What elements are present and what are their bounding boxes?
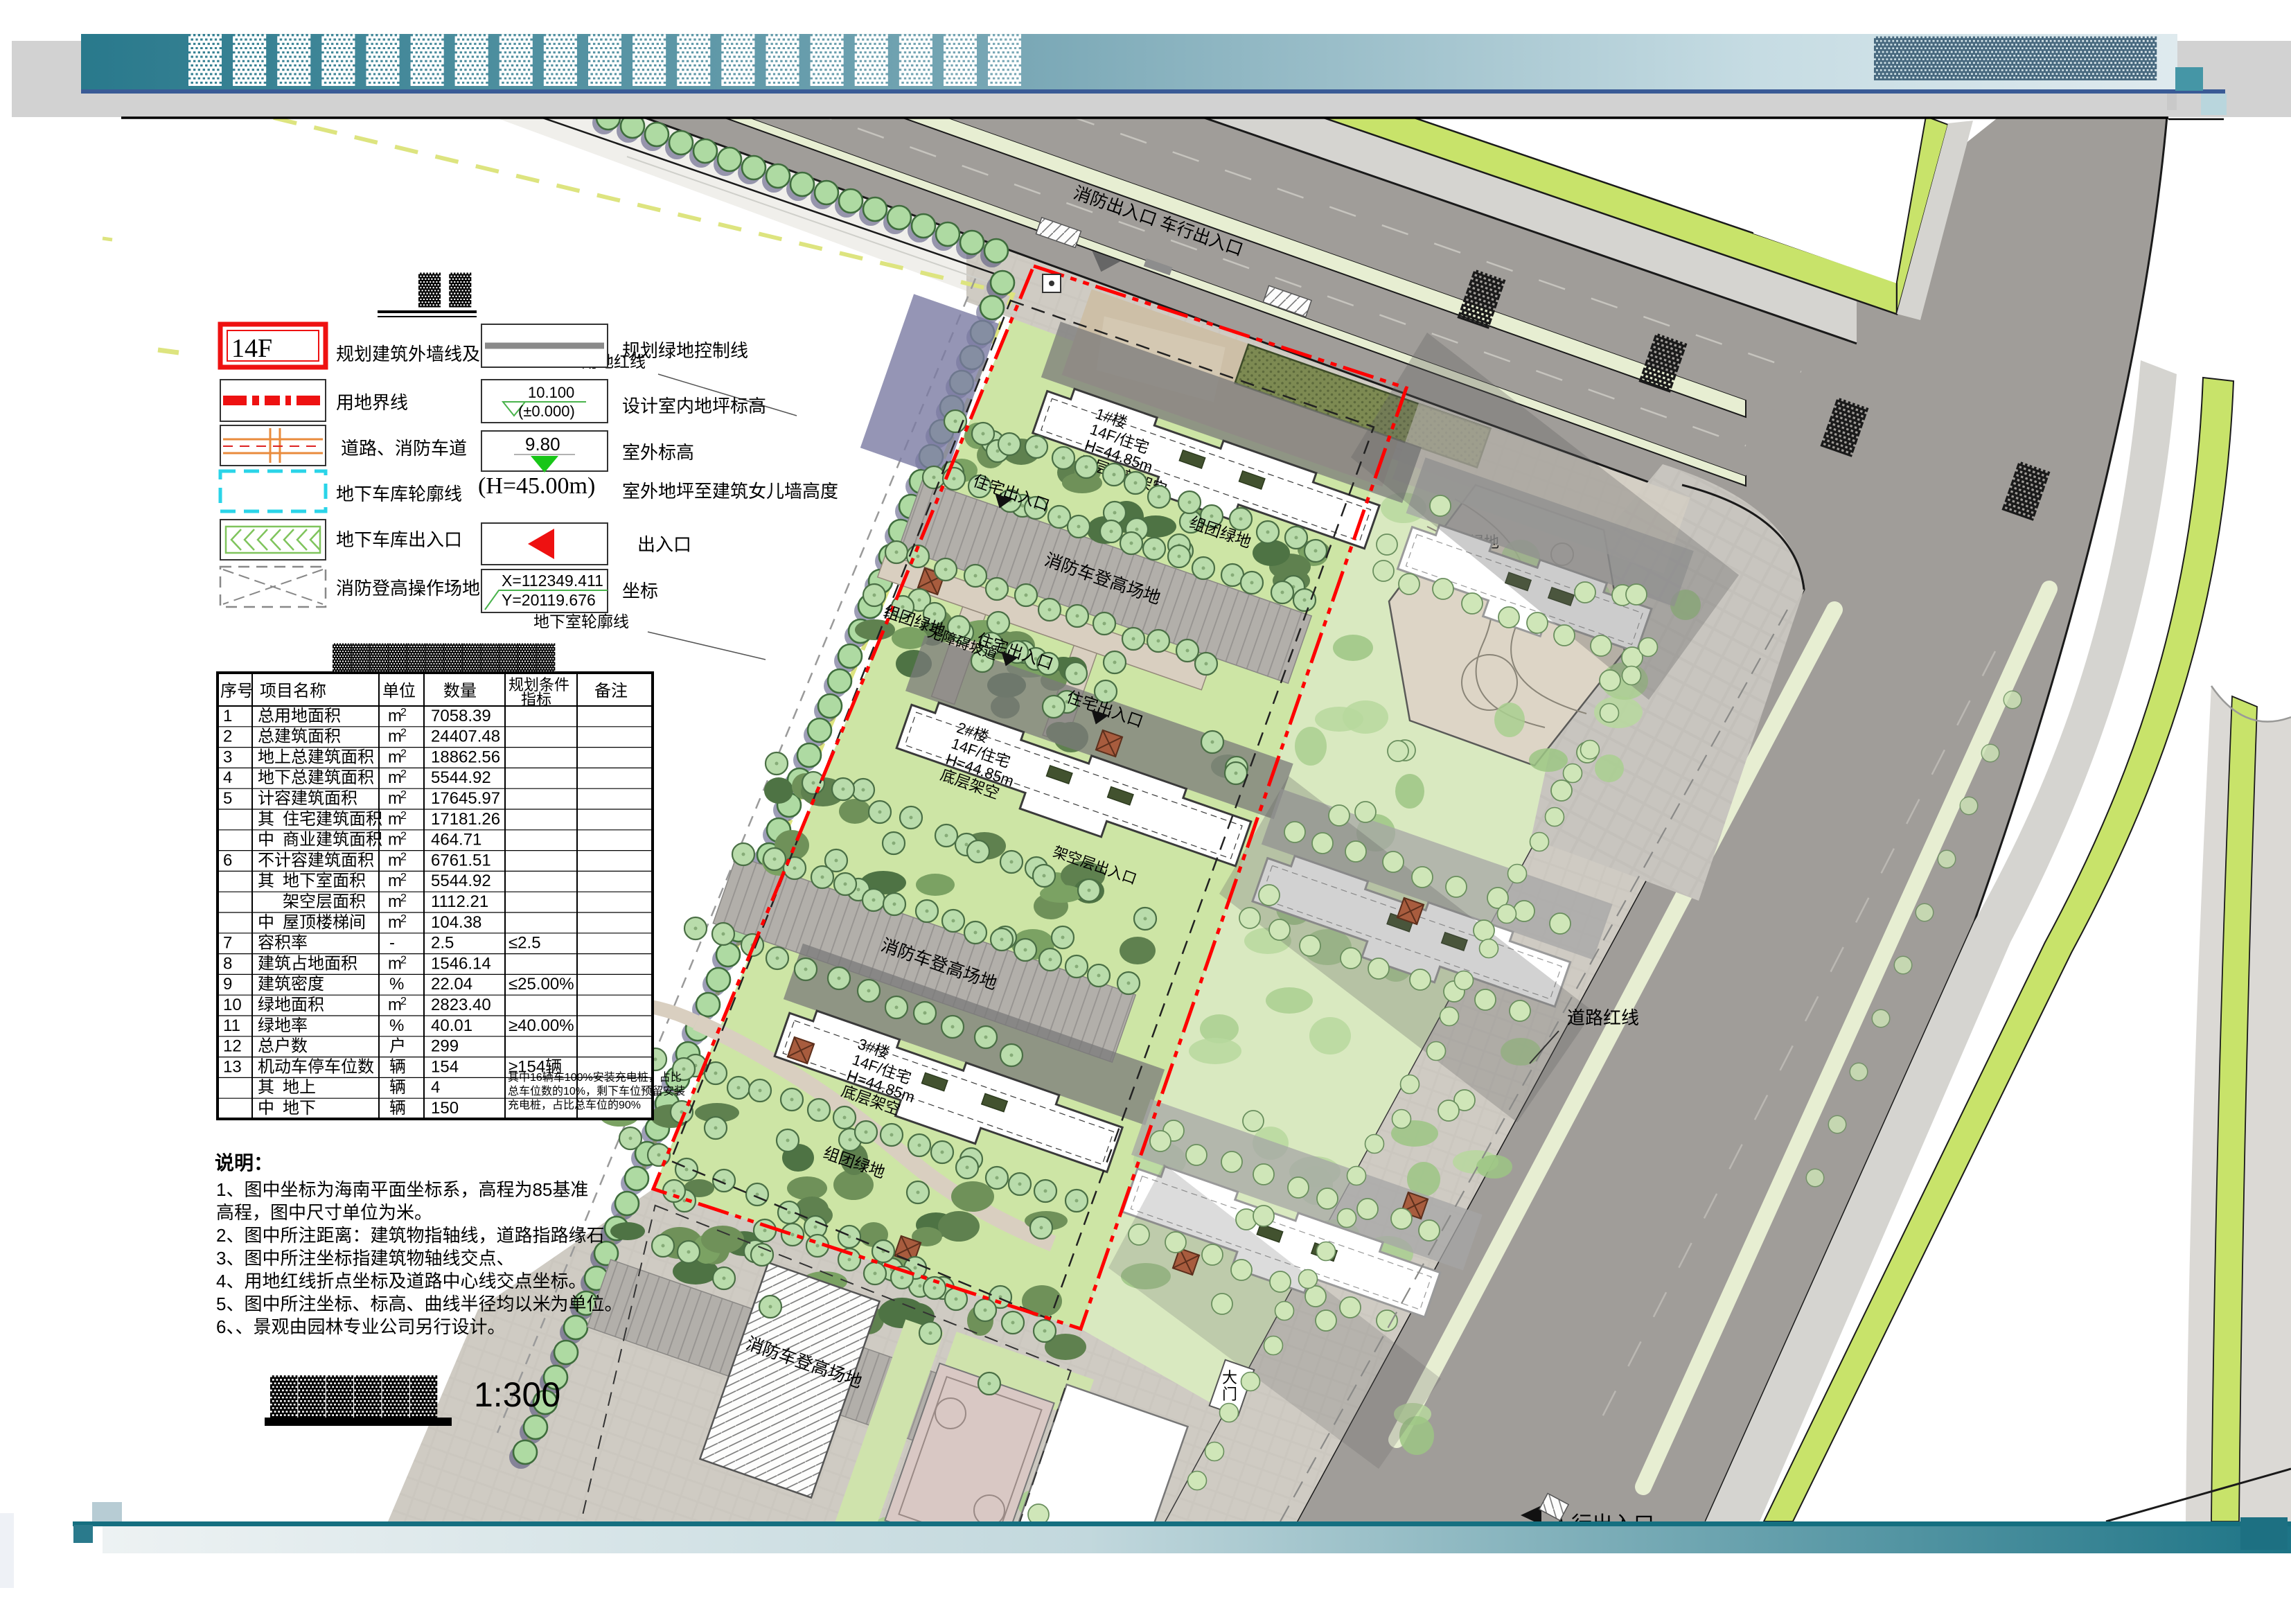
- svg-text:▓▓▓▓▓▓▓▓▓▓: ▓▓▓▓▓▓▓▓▓▓: [1874, 33, 2157, 80]
- svg-text:地上: 地上: [283, 1078, 316, 1097]
- svg-text:12: 12: [223, 1037, 242, 1056]
- svg-text:地下车库出入口: 地下车库出入口: [336, 529, 462, 550]
- svg-text:1546.14: 1546.14: [431, 954, 491, 973]
- svg-text:2: 2: [400, 727, 407, 739]
- svg-text:地下室轮廓线: 地下室轮廓线: [533, 612, 629, 630]
- svg-text:辆: 辆: [389, 1057, 406, 1076]
- svg-text:道路红线: 道路红线: [1567, 1007, 1639, 1028]
- svg-text:4: 4: [431, 1078, 440, 1097]
- svg-text:户: 户: [389, 1037, 406, 1056]
- svg-text:2: 2: [400, 707, 407, 718]
- svg-text:总用地面积: 总用地面积: [258, 707, 341, 725]
- svg-text:8: 8: [223, 954, 232, 973]
- svg-text:2823.40: 2823.40: [431, 996, 491, 1014]
- svg-text:9: 9: [223, 975, 232, 994]
- svg-text:2: 2: [400, 810, 407, 822]
- svg-text:m: m: [388, 954, 402, 973]
- svg-text:2: 2: [223, 727, 232, 746]
- svg-text:中: 中: [258, 831, 274, 849]
- svg-text:(H=45.00m): (H=45.00m): [478, 473, 595, 499]
- svg-text:40.01: 40.01: [431, 1016, 472, 1035]
- svg-text:地上总建筑面积: 地上总建筑面积: [258, 748, 374, 766]
- svg-text:104.38: 104.38: [431, 913, 481, 932]
- svg-text:14F: 14F: [231, 334, 272, 363]
- svg-text:其: 其: [258, 810, 274, 829]
- svg-text:2、图中所注距离：建筑物指轴线，道路指路缘石: 2、图中所注距离：建筑物指轴线，道路指路缘石: [216, 1225, 604, 1246]
- svg-text:150: 150: [431, 1099, 459, 1118]
- svg-text:154: 154: [431, 1057, 459, 1076]
- svg-text:(±0.000): (±0.000): [518, 403, 575, 420]
- svg-text:充电桩，占比总车位的90%: 充电桩，占比总车位的90%: [508, 1099, 641, 1111]
- svg-text:建筑密度: 建筑密度: [258, 975, 324, 994]
- svg-text:5544.92: 5544.92: [431, 768, 491, 787]
- svg-text:1:300: 1:300: [474, 1375, 560, 1414]
- svg-text:其: 其: [258, 1078, 274, 1097]
- svg-text:≤25.00%: ≤25.00%: [508, 975, 574, 994]
- svg-text:地下: 地下: [283, 1099, 316, 1118]
- svg-text:绿地率: 绿地率: [258, 1016, 308, 1035]
- svg-text:1112.21: 1112.21: [431, 892, 488, 911]
- svg-text:不计容建筑面积: 不计容建筑面积: [258, 851, 374, 870]
- svg-text:6: 6: [223, 851, 232, 870]
- svg-text:2: 2: [400, 892, 407, 904]
- svg-text:5544.92: 5544.92: [431, 872, 491, 890]
- svg-text:出入口: 出入口: [637, 534, 691, 555]
- svg-text:地下室面积: 地下室面积: [283, 872, 366, 890]
- svg-text:中: 中: [258, 913, 274, 932]
- svg-text:坐标: 坐标: [622, 581, 658, 601]
- svg-text:▓▓▓▓▓▓▓▓▓▓▓▓: ▓▓▓▓▓▓▓▓▓▓▓▓: [333, 642, 556, 673]
- svg-text:-: -: [389, 934, 395, 953]
- svg-text:m: m: [388, 913, 402, 932]
- svg-text:建筑占地面积: 建筑占地面积: [258, 954, 357, 973]
- svg-text:10: 10: [223, 996, 242, 1014]
- svg-text:设计室内地坪标高: 设计室内地坪标高: [622, 396, 766, 416]
- svg-text:说明：: 说明：: [215, 1152, 273, 1174]
- svg-text:序号: 序号: [220, 682, 254, 700]
- svg-text:2: 2: [400, 748, 407, 759]
- svg-text:299: 299: [431, 1037, 459, 1056]
- svg-text:中: 中: [258, 1099, 274, 1118]
- svg-text:m: m: [388, 892, 402, 911]
- svg-text:室外地坪至建筑女儿墙高度: 室外地坪至建筑女儿墙高度: [622, 481, 838, 502]
- svg-text:单位: 单位: [382, 682, 416, 700]
- svg-text:规划绿地控制线: 规划绿地控制线: [622, 340, 748, 361]
- svg-text:2: 2: [400, 996, 407, 1007]
- svg-text:17181.26: 17181.26: [431, 810, 500, 829]
- svg-text:m: m: [388, 810, 402, 829]
- svg-text:464.71: 464.71: [431, 831, 481, 849]
- svg-text:2: 2: [400, 789, 407, 801]
- svg-text:地下车库轮廓线: 地下车库轮廓线: [336, 484, 462, 504]
- svg-text:机动车停车位数: 机动车停车位数: [258, 1057, 374, 1076]
- svg-text:m: m: [388, 851, 402, 870]
- svg-text:m: m: [388, 727, 402, 746]
- svg-text:7: 7: [223, 934, 232, 953]
- svg-text:总建筑面积: 总建筑面积: [258, 727, 341, 746]
- svg-text:≤2.5: ≤2.5: [508, 934, 541, 953]
- svg-text:m: m: [388, 872, 402, 890]
- svg-text:2: 2: [400, 954, 407, 966]
- svg-text:%: %: [389, 975, 404, 994]
- svg-text:24407.48: 24407.48: [431, 727, 500, 746]
- svg-text:住宅建筑面积: 住宅建筑面积: [283, 810, 382, 829]
- svg-text:%: %: [389, 1016, 404, 1035]
- svg-text:总车位数的10%，剩下车位预留安装: 总车位数的10%，剩下车位预留安装: [508, 1085, 685, 1097]
- svg-text:m: m: [388, 768, 402, 787]
- svg-text:辆: 辆: [389, 1078, 406, 1097]
- svg-text:≥40.00%: ≥40.00%: [508, 1016, 574, 1035]
- svg-text:室外标高: 室外标高: [622, 442, 694, 463]
- svg-text:3、图中所注坐标指建筑物轴线交点、: 3、图中所注坐标指建筑物轴线交点、: [216, 1248, 514, 1269]
- svg-text:1: 1: [223, 707, 232, 725]
- svg-text:▓ ▓: ▓ ▓: [418, 271, 472, 308]
- svg-text:6、、景观由园林专业公司另行设计。: 6、、景观由园林专业公司另行设计。: [216, 1316, 505, 1337]
- svg-text:10.100: 10.100: [528, 384, 574, 401]
- svg-text:▓▓▓▓▓▓: ▓▓▓▓▓▓: [270, 1373, 438, 1418]
- svg-text:地下总建筑面积: 地下总建筑面积: [258, 768, 374, 787]
- svg-text:绿地面积: 绿地面积: [258, 996, 324, 1014]
- svg-text:2: 2: [400, 913, 407, 925]
- svg-text:m: m: [388, 748, 402, 766]
- svg-text:m: m: [388, 996, 402, 1014]
- svg-text:消防登高操作场地: 消防登高操作场地: [336, 578, 480, 599]
- svg-text:9.80: 9.80: [525, 434, 560, 454]
- svg-text:辆: 辆: [389, 1099, 406, 1118]
- svg-text:大: 大: [1222, 1369, 1237, 1386]
- svg-text:13: 13: [223, 1057, 242, 1076]
- svg-text:4、用地红线折点坐标及道路中心线交点坐标。: 4、用地红线折点坐标及道路中心线交点坐标。: [216, 1271, 586, 1291]
- svg-text:备注: 备注: [594, 682, 628, 700]
- svg-text:2: 2: [400, 851, 407, 863]
- svg-text:Y=20119.676: Y=20119.676: [502, 591, 596, 609]
- svg-text:2.5: 2.5: [431, 934, 454, 953]
- svg-text:3: 3: [223, 748, 232, 766]
- svg-text:m: m: [388, 831, 402, 849]
- svg-text:用地界线: 用地界线: [336, 392, 408, 413]
- svg-text:22.04: 22.04: [431, 975, 472, 994]
- svg-text:其: 其: [258, 872, 274, 890]
- svg-text:其中16辆车100%安装充电桩，占比: 其中16辆车100%安装充电桩，占比: [508, 1071, 682, 1084]
- svg-text:商业建筑面积: 商业建筑面积: [283, 831, 382, 849]
- svg-text:2: 2: [400, 831, 407, 842]
- svg-text:项目名称: 项目名称: [260, 682, 326, 700]
- svg-text:高程，图中尺寸单位为米。: 高程，图中尺寸单位为米。: [216, 1202, 432, 1223]
- svg-text:总户数: 总户数: [258, 1037, 308, 1056]
- svg-text:▓▓▓▓▓▓▓▓▓▓▓▓▓▓▓▓▓▓▓: ▓▓▓▓▓▓▓▓▓▓▓▓▓▓▓▓▓▓▓: [188, 30, 1032, 87]
- svg-text:18862.56: 18862.56: [431, 748, 500, 766]
- svg-text:7058.39: 7058.39: [431, 707, 491, 725]
- svg-text:2: 2: [400, 872, 407, 883]
- svg-text:6761.51: 6761.51: [431, 851, 491, 870]
- svg-text:m: m: [388, 707, 402, 725]
- svg-text:4: 4: [223, 768, 232, 787]
- svg-text:5: 5: [223, 789, 232, 808]
- svg-text:屋顶楼梯间: 屋顶楼梯间: [283, 913, 366, 932]
- svg-text:道路、消防车道: 道路、消防车道: [341, 438, 467, 459]
- svg-text:容积率: 容积率: [258, 934, 308, 953]
- svg-text:5、图中所注坐标、标高、曲线半径均以米为单位。: 5、图中所注坐标、标高、曲线半径均以米为单位。: [216, 1294, 622, 1314]
- svg-text:X=112349.411: X=112349.411: [502, 572, 603, 590]
- svg-text:架空层面积: 架空层面积: [283, 892, 366, 911]
- svg-text:m: m: [388, 789, 402, 808]
- svg-text:17645.97: 17645.97: [431, 789, 500, 808]
- svg-text:11: 11: [223, 1016, 240, 1035]
- svg-text:1、图中坐标为海南平面坐标系，高程为85基准: 1、图中坐标为海南平面坐标系，高程为85基准: [216, 1179, 588, 1200]
- svg-text:计容建筑面积: 计容建筑面积: [258, 789, 357, 808]
- svg-text:门: 门: [1222, 1386, 1237, 1403]
- svg-text:2: 2: [400, 768, 407, 780]
- svg-text:数量: 数量: [443, 682, 477, 700]
